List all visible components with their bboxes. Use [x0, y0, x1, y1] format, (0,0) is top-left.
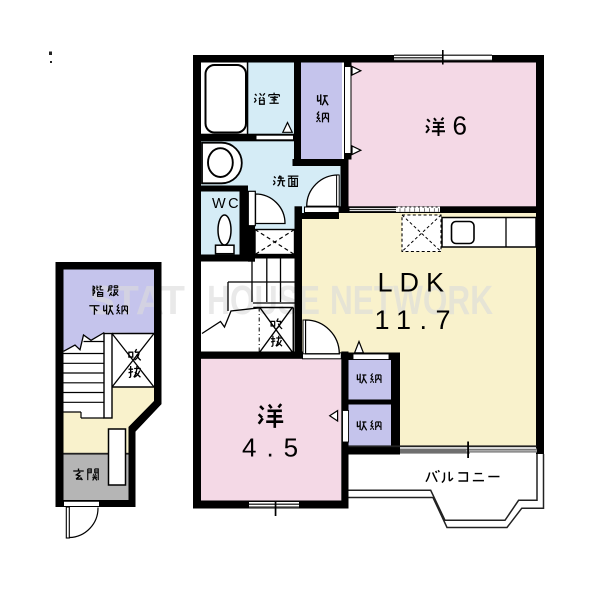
- svg-text:STAT: STAT: [89, 277, 185, 323]
- svg-text:4.5: 4.5: [242, 433, 308, 463]
- svg-text:WC: WC: [212, 196, 241, 212]
- svg-text:LDK: LDK: [378, 268, 452, 298]
- svg-text:11.7: 11.7: [375, 305, 460, 335]
- svg-text:HOUSE: HOUSE: [207, 277, 320, 323]
- svg-text:6: 6: [453, 111, 467, 141]
